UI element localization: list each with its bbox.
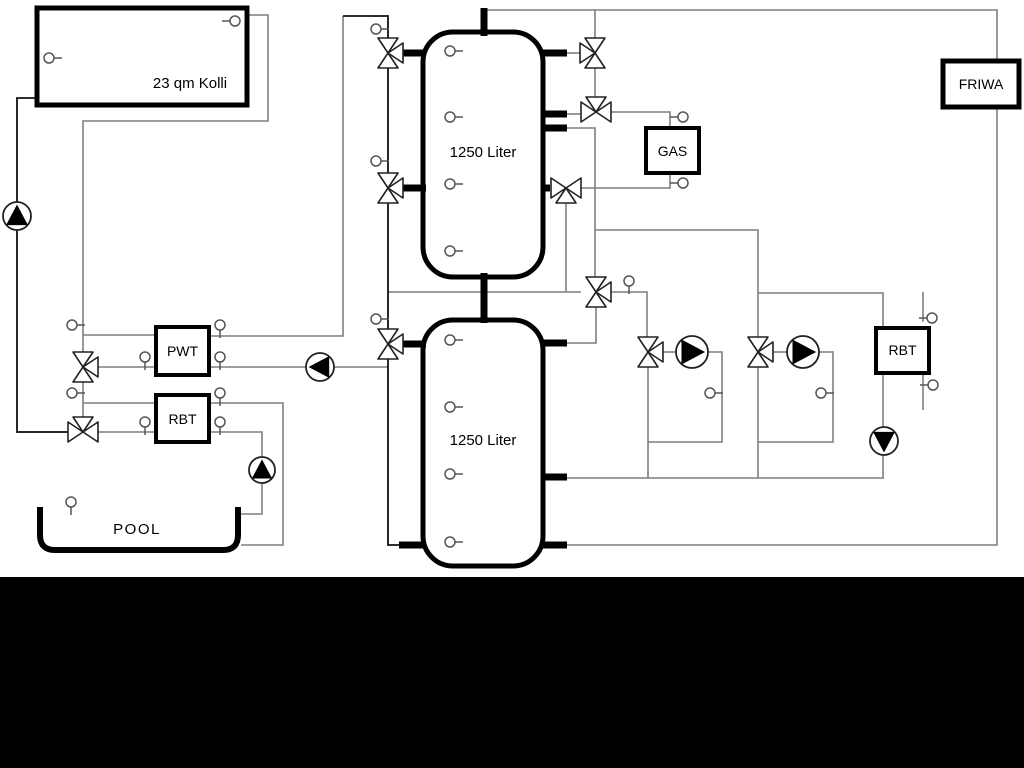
pipe-valve-h-bottom — [566, 307, 596, 343]
temperature-sensor — [919, 313, 937, 323]
valve-tank1-left-top — [378, 38, 403, 68]
valve-pwt-supply — [73, 352, 98, 382]
tank2-label: 1250 Liter — [424, 432, 542, 450]
pump-rbt-right — [870, 427, 898, 455]
sensor-bulb — [705, 388, 715, 398]
pipe-gas-top — [611, 112, 670, 128]
sensor-bulb — [140, 352, 150, 362]
sensor-bulb — [445, 179, 455, 189]
valve-tank1-right-top — [580, 38, 605, 68]
sensor-bulb — [67, 320, 77, 330]
valve-tank2-left-top — [378, 329, 403, 359]
sensor-bulb — [445, 469, 455, 479]
temperature-sensor — [670, 178, 688, 188]
pipe-valve-h-right — [611, 292, 647, 337]
pipe-branch-header — [595, 230, 758, 337]
temperature-sensor — [670, 112, 688, 122]
sensor-bulb — [678, 178, 688, 188]
sensor-bulb — [140, 417, 150, 427]
friwa-label: FRIWA — [943, 75, 1019, 93]
sensor-bulb — [215, 320, 225, 330]
sensor-bulb — [215, 417, 225, 427]
sensor-bulb — [816, 388, 826, 398]
sensor-bulb — [445, 112, 455, 122]
valve-heating-circuit-1 — [638, 337, 663, 367]
sensor-bulb — [445, 537, 455, 547]
valve-gas-flow — [581, 97, 611, 122]
schematic-canvas: 23 qm Kolli 1250 Liter 1250 Liter GAS FR… — [0, 0, 1024, 768]
temperature-sensor — [705, 388, 723, 398]
valve-tank1-left-mid — [378, 173, 403, 203]
sensor-bulb — [371, 24, 381, 34]
temperature-sensor — [371, 314, 389, 324]
sensor-bulb — [230, 16, 240, 26]
pipe-collector-return — [17, 98, 68, 432]
collector-label: 23 qm Kolli — [130, 75, 250, 93]
sensor-bulb — [44, 53, 54, 63]
pool-label: POOL — [77, 521, 197, 539]
pipe-tank-left-header — [343, 16, 402, 545]
sensor-bulb — [445, 46, 455, 56]
temperature-sensor — [371, 156, 389, 166]
sensor-bulb — [66, 497, 76, 507]
tank1-label: 1250 Liter — [424, 144, 542, 162]
sensor-bulb — [928, 380, 938, 390]
temperature-sensor — [816, 388, 834, 398]
sensor-bulb — [445, 246, 455, 256]
pump-heating-circuit-2 — [787, 336, 819, 368]
sensor-bulb — [445, 402, 455, 412]
rbt-left-label: RBT — [156, 410, 209, 428]
sensor-bulb — [445, 335, 455, 345]
sensor-bulb — [927, 313, 937, 323]
valve-gas-return — [551, 178, 581, 203]
temperature-sensor — [371, 24, 389, 34]
pump-heating-circuit-1 — [676, 336, 708, 368]
sensor-bulb — [371, 156, 381, 166]
sensor-bulb — [67, 388, 77, 398]
pipe-top-main-friwa — [484, 10, 997, 545]
sensor-bulb — [371, 314, 381, 324]
pump-pool — [249, 457, 275, 483]
gas-label: GAS — [646, 142, 699, 160]
pump-collector — [3, 202, 31, 230]
pwt-label: PWT — [156, 342, 209, 360]
pipe-rbt-right-top — [758, 293, 883, 328]
valve-distribution — [586, 277, 611, 307]
valve-heating-circuit-2 — [748, 337, 773, 367]
sensor-bulb — [215, 352, 225, 362]
temperature-sensor — [66, 497, 76, 515]
pump-pwt — [306, 353, 334, 381]
rbt-right-label: RBT — [876, 341, 929, 359]
sensor-bulb — [215, 388, 225, 398]
sensor-bulb — [624, 276, 634, 286]
letterbox-bottom-bar — [0, 577, 1024, 768]
valve-pool-circuit — [68, 417, 98, 442]
sensor-bulb — [678, 112, 688, 122]
